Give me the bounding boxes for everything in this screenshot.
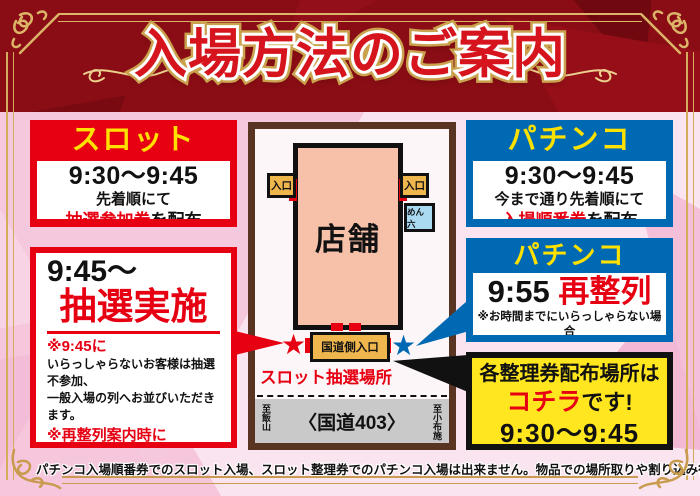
entrance-left: 入口 (267, 173, 296, 198)
page-title: 入場方法のご案内 (134, 25, 566, 84)
entrance-guide-poster: 入場方法のご案内 入場方法のご案内 入場方法のご案内 スロット 9:30〜9:4… (0, 0, 700, 496)
door-marker-bottom-2 (349, 323, 361, 331)
lottery-note2-line1: いらっしゃらないお客様は最後尾へ (47, 445, 220, 448)
slot-info-box: スロット 9:30〜9:45 先着順にて 抽選参加券を配布 (30, 120, 237, 227)
lottery-title: 抽選実施 (47, 288, 220, 327)
entrance-right: 入口 (400, 173, 429, 198)
slot-time: 9:30〜9:45 (37, 161, 230, 191)
road-dashed-line (257, 395, 447, 397)
door-marker-bottom-1 (331, 323, 343, 331)
lottery-note1-head: ※9:45に (47, 338, 220, 356)
blue-star-icon: ★ (391, 332, 416, 360)
relineup-box-body: 9:55 再整列 ※お時間までにいらっしゃらない場合 最後尾にさせて頂きます。 (473, 273, 666, 335)
lottery-note2-head: ※再整列案内時に (47, 427, 220, 445)
pachinko-ticket-line: 入場順番券を配布 (473, 210, 666, 220)
slot-line1: 先着順にて (37, 191, 230, 210)
pachinko-ticket-highlight: 入場順番券 (502, 211, 587, 220)
location-highlight: コチラ (506, 388, 581, 416)
slot-ticket-line: 抽選参加券を配布 (37, 210, 230, 220)
slot-ticket-suffix: を配布 (151, 211, 202, 220)
direction-to-obuse: 至小布施 (431, 404, 444, 440)
road-route403: 至飯山 〈国道403〉 至小布施 (255, 399, 449, 443)
gold-frame-top (58, 13, 642, 22)
road-side-entrance: 国道側入口 (310, 332, 390, 362)
gold-bottom-corner-swirl-icon (8, 448, 62, 494)
red-star-icon: ★ (281, 331, 306, 359)
pachinko-box-body: 9:30〜9:45 今まで通り先着順にて 入場順番券を配布 (473, 161, 666, 219)
store-label: 店舗 (315, 214, 381, 259)
menroku-shop: めん六 (404, 203, 435, 232)
pachinko-time: 9:30〜9:45 (473, 161, 666, 191)
gold-bottom-corner-swirl-icon (638, 448, 692, 494)
location-line1: 各整理券配布場所は (472, 358, 667, 387)
pachinko-line1: 今まで通り先着順にて (473, 191, 666, 210)
location-time: 9:30〜9:45 (472, 418, 667, 444)
site-map: 店舗 入口 入口 めん六 国道側入口 ★ ★ スロット抽選場所 至飯山 〈国道4… (248, 122, 456, 450)
store-building: 店舗 (293, 143, 403, 330)
relineup-time-line: 9:55 再整列 (473, 273, 666, 310)
ticket-location-inner: 各整理券配布場所は コチラです! 9:30〜9:45 (472, 358, 667, 444)
red-divider (47, 331, 220, 334)
lottery-note1-line1: いらっしゃらないお客様は抽選不参加、 (47, 356, 220, 390)
header-banner: 入場方法のご案内 入場方法のご案内 入場方法のご案内 (0, 0, 700, 112)
slot-box-title: スロット (30, 120, 237, 160)
slot-ticket-highlight: 抽選参加券 (66, 211, 151, 220)
relineup-info-box: パチンコ 9:55 再整列 ※お時間までにいらっしゃらない場合 最後尾にさせて頂… (466, 238, 673, 342)
pachinko-box-title: パチンコ (466, 120, 673, 160)
page-title-wrap: 入場方法のご案内 入場方法のご案内 入場方法のご案内 (0, 28, 700, 81)
location-line2: コチラです! (472, 387, 667, 418)
pachinko-info-box: パチンコ 9:30〜9:45 今まで通り先着順にて 入場順番券を配布 (466, 120, 673, 227)
relineup-note-line1: ※お時間までにいらっしゃらない場合 (473, 310, 666, 335)
pachinko-ticket-suffix: を配布 (587, 211, 638, 220)
slot-lottery-location-label: スロット抽選場所 (260, 364, 392, 388)
lottery-info-box: 9:45〜 抽選実施 ※9:45に いらっしゃらないお客様は抽選不参加、 一般入… (30, 247, 237, 448)
lottery-time: 9:45〜 (47, 256, 220, 288)
ticket-location-box: 各整理券配布場所は コチラです! 9:30〜9:45 (466, 352, 673, 450)
road-name-label: 〈国道403〉 (255, 408, 449, 435)
gold-side-line-right (686, 52, 694, 480)
relineup-time: 9:55 (488, 274, 559, 309)
lottery-note1-line2: 一般入場の列へお並びいただきます。 (47, 390, 220, 424)
gold-side-line-left (6, 52, 14, 480)
slot-box-body: 9:30〜9:45 先着順にて 抽選参加券を配布 (37, 161, 230, 219)
relineup-highlight: 再整列 (558, 274, 651, 309)
relineup-box-title: パチンコ (466, 238, 673, 272)
location-line2-suffix: です! (581, 390, 632, 415)
gold-bottom-line (62, 476, 638, 484)
